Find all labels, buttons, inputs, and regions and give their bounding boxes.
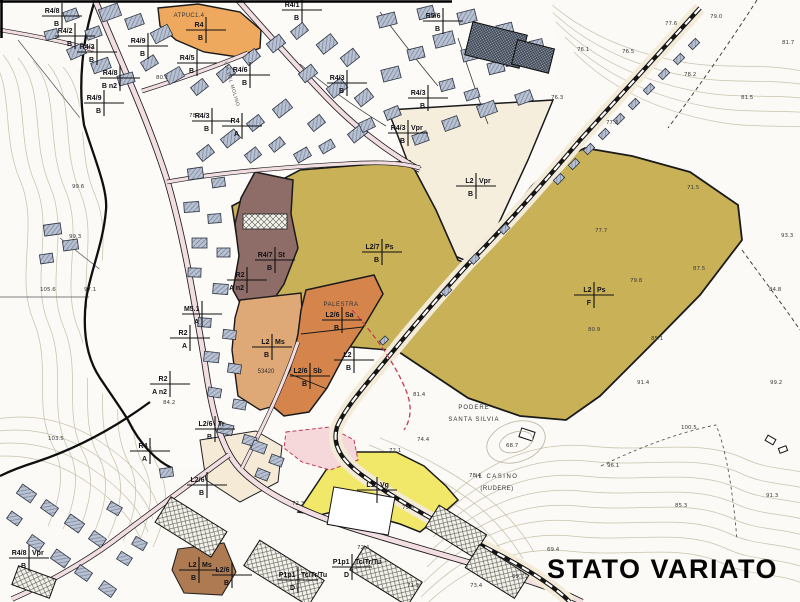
svg-text:B: B xyxy=(400,138,405,145)
svg-text:B: B xyxy=(468,191,473,198)
spot-elevation: 99.6 xyxy=(72,184,85,190)
spot-elevation: 96.1 xyxy=(607,463,619,469)
svg-text:Ps: Ps xyxy=(597,287,606,294)
place-label: 53420 xyxy=(258,369,275,375)
svg-text:L2/7: L2/7 xyxy=(365,244,379,251)
svg-text:A n2: A n2 xyxy=(152,389,167,396)
svg-text:B: B xyxy=(204,126,209,133)
spot-elevation: 79.4 xyxy=(402,505,415,511)
spot-elevation: 73.4 xyxy=(470,583,483,589)
svg-text:D: D xyxy=(290,585,295,592)
svg-text:R4/9: R4/9 xyxy=(131,38,146,45)
spot-elevation: 81.7 xyxy=(782,40,795,46)
spot-elevation: 77.7 xyxy=(595,228,608,234)
svg-text:P1p1: P1p1 xyxy=(279,572,296,579)
svg-text:R4/8: R4/8 xyxy=(12,550,27,557)
svg-text:R4/3: R4/3 xyxy=(80,44,95,51)
svg-text:Vg: Vg xyxy=(380,482,389,489)
svg-text:Sa: Sa xyxy=(345,312,354,319)
building xyxy=(227,363,241,374)
spot-elevation: 72.4 xyxy=(357,545,370,551)
spot-elevation: 76.3 xyxy=(551,95,564,101)
place-label: (RUDERE) xyxy=(480,486,513,492)
svg-text:B: B xyxy=(140,51,145,58)
svg-text:R2: R2 xyxy=(236,272,245,279)
svg-text:Tc/Tr/Tu: Tc/Tr/Tu xyxy=(301,572,327,579)
svg-text:B: B xyxy=(21,563,26,570)
building xyxy=(198,318,212,328)
svg-text:R2: R2 xyxy=(159,376,168,383)
place-label: IL CASINO xyxy=(476,474,519,480)
building xyxy=(39,253,53,264)
spot-elevation: 91.4 xyxy=(637,380,650,386)
building xyxy=(159,467,173,478)
building xyxy=(211,177,225,188)
svg-text:B: B xyxy=(294,15,299,22)
svg-text:Vpr: Vpr xyxy=(411,125,423,132)
spot-elevation: 99.3 xyxy=(69,234,82,240)
building xyxy=(208,214,222,224)
spot-elevation: 91.3 xyxy=(766,493,779,499)
building xyxy=(223,329,237,339)
svg-text:Ps: Ps xyxy=(385,244,394,251)
svg-text:M5.1: M5.1 xyxy=(184,306,200,313)
svg-text:B: B xyxy=(302,381,307,388)
svg-text:L2/6: L2/6 xyxy=(325,312,339,319)
spot-elevation: 68.7 xyxy=(506,443,519,449)
svg-text:R4: R4 xyxy=(195,22,204,29)
spot-elevation: 78.2 xyxy=(684,72,696,78)
svg-text:B: B xyxy=(334,325,339,332)
building xyxy=(62,239,78,251)
spot-elevation: 85.1 xyxy=(651,336,663,342)
spot-elevation: 85.3 xyxy=(675,503,688,509)
spot-elevation: 69.7 xyxy=(512,574,525,580)
svg-text:Vpr: Vpr xyxy=(479,178,491,185)
building xyxy=(188,268,201,277)
spot-elevation: 77.6 xyxy=(665,21,678,27)
svg-text:Tr: Tr xyxy=(218,421,225,428)
svg-text:F: F xyxy=(587,300,592,307)
building xyxy=(192,238,207,248)
spot-elevation: 80.1 xyxy=(156,75,168,81)
svg-text:L2/6: L2/6 xyxy=(198,421,212,428)
svg-text:Vpr: Vpr xyxy=(32,550,44,557)
building xyxy=(187,167,203,180)
svg-text:D: D xyxy=(344,572,349,579)
svg-text:R5/6: R5/6 xyxy=(426,13,441,20)
svg-text:B: B xyxy=(191,575,196,582)
svg-text:B: B xyxy=(198,35,203,42)
building xyxy=(43,223,61,236)
map-status-title: STATO VARIATO xyxy=(547,554,778,584)
svg-text:B: B xyxy=(89,57,94,64)
spot-elevation: 105.6 xyxy=(40,287,56,293)
spot-elevation: 71.5 xyxy=(407,583,420,589)
svg-text:B: B xyxy=(189,68,194,75)
building xyxy=(207,387,221,398)
svg-text:R2: R2 xyxy=(179,330,188,337)
spot-elevation: 69.4 xyxy=(547,547,560,553)
svg-text:B: B xyxy=(420,103,425,110)
svg-text:B n2: B n2 xyxy=(102,83,117,90)
svg-text:B: B xyxy=(224,580,229,587)
spot-elevation: 77.3 xyxy=(606,120,619,126)
spot-elevation: 76.1 xyxy=(577,47,589,53)
svg-text:L2: L2 xyxy=(261,339,269,346)
building xyxy=(213,283,229,294)
svg-text:L2/6: L2/6 xyxy=(215,567,229,574)
svg-text:A: A xyxy=(142,456,147,463)
spot-elevation: 97.1 xyxy=(84,287,96,293)
place-label: PODERE xyxy=(458,405,489,411)
svg-text:R4/6: R4/6 xyxy=(233,67,248,74)
spot-elevation: 84.8 xyxy=(769,287,782,293)
svg-text:R4/8: R4/8 xyxy=(103,70,118,77)
svg-text:B: B xyxy=(54,21,59,28)
spot-elevation: 84.2 xyxy=(163,400,175,406)
svg-text:St: St xyxy=(278,252,286,259)
svg-text:B: B xyxy=(267,265,272,272)
svg-text:R4/2: R4/2 xyxy=(58,28,73,35)
svg-text:R4: R4 xyxy=(231,118,240,125)
spot-elevation: 76.5 xyxy=(622,49,635,55)
svg-text:R4/1: R4/1 xyxy=(285,2,300,9)
svg-text:B: B xyxy=(242,80,247,87)
spot-elevation: 71.5 xyxy=(687,185,700,191)
zone-brown-hatch-strip xyxy=(243,214,287,229)
svg-text:L2: L2 xyxy=(583,287,591,294)
spot-elevation: 78.6 xyxy=(189,113,202,119)
svg-text:B: B xyxy=(346,365,351,372)
svg-text:R4/8: R4/8 xyxy=(45,8,60,15)
spot-elevation: 80.9 xyxy=(588,327,601,333)
spot-elevation: 72.1 xyxy=(389,448,401,454)
svg-text:Sb: Sb xyxy=(313,368,322,375)
svg-text:R4/3: R4/3 xyxy=(330,75,345,82)
spot-elevation: 93.3 xyxy=(781,233,794,239)
svg-text:A: A xyxy=(194,319,199,326)
svg-text:Tc/Tr/Tu: Tc/Tr/Tu xyxy=(355,559,381,566)
svg-text:B: B xyxy=(199,490,204,497)
svg-text:R4/7: R4/7 xyxy=(258,252,273,259)
place-label: PALESTRA xyxy=(324,302,359,308)
svg-text:L2/6: L2/6 xyxy=(293,368,307,375)
svg-text:R4/3: R4/3 xyxy=(391,125,406,132)
svg-text:A: A xyxy=(234,131,239,138)
svg-text:R4/5: R4/5 xyxy=(180,55,195,62)
svg-text:B: B xyxy=(207,434,212,441)
svg-text:B: B xyxy=(339,88,344,95)
svg-text:R4/9: R4/9 xyxy=(87,95,102,102)
building xyxy=(204,351,220,363)
spot-elevation: 72.3 xyxy=(292,501,305,507)
svg-text:Ms: Ms xyxy=(202,562,212,569)
svg-text:B: B xyxy=(67,41,72,48)
spot-elevation: 74.4 xyxy=(417,437,430,443)
svg-text:L2: L2 xyxy=(465,178,473,185)
variant-plan-map: L2VprBL2/7PsBL2PsFR4/7StBL2MsBL2/6SaBL2/… xyxy=(0,0,800,602)
building xyxy=(232,399,246,410)
svg-text:B: B xyxy=(374,257,379,264)
svg-text:R4: R4 xyxy=(139,443,148,450)
spot-elevation: 99.2 xyxy=(770,380,782,386)
svg-text:L2/6: L2/6 xyxy=(190,477,204,484)
spot-elevation: 81.4 xyxy=(413,392,426,398)
building xyxy=(184,201,200,212)
place-label: ATPUC1.4 xyxy=(174,13,205,19)
svg-text:R4/3: R4/3 xyxy=(411,90,426,97)
svg-text:B: B xyxy=(435,26,440,33)
spot-elevation: 100.5 xyxy=(681,425,697,431)
svg-text:Ms: Ms xyxy=(275,339,285,346)
building xyxy=(217,248,230,257)
svg-text:P1p1: P1p1 xyxy=(333,559,350,566)
place-label: SANTA SILVIA xyxy=(448,417,499,423)
spot-elevation: 79.0 xyxy=(710,14,723,20)
spot-elevation: 79.8 xyxy=(630,278,643,284)
svg-text:L1: L1 xyxy=(366,482,374,489)
svg-text:B: B xyxy=(96,108,101,115)
spot-elevation: 81.5 xyxy=(741,95,754,101)
spot-elevation: 87.5 xyxy=(693,266,706,272)
svg-text:A n2: A n2 xyxy=(229,285,244,292)
svg-text:B: B xyxy=(264,352,269,359)
svg-text:L2: L2 xyxy=(343,352,351,359)
svg-text:L2: L2 xyxy=(188,562,196,569)
map-canvas: L2VprBL2/7PsBL2PsFR4/7StBL2MsBL2/6SaBL2/… xyxy=(0,0,800,602)
svg-text:A: A xyxy=(182,343,187,350)
spot-elevation: 103.5 xyxy=(48,436,64,442)
